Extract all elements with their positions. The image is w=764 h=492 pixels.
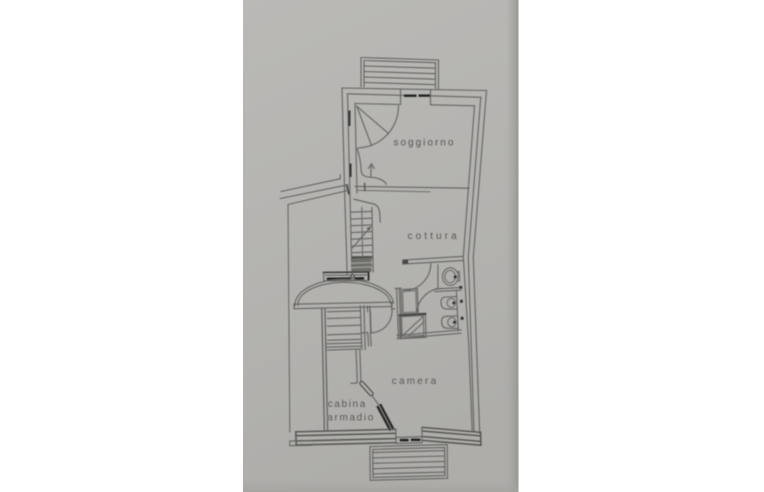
svg-text:camera: camera: [392, 376, 439, 387]
svg-text:cabina: cabina: [328, 399, 367, 410]
svg-text:soggiorno: soggiorno: [394, 138, 456, 149]
svg-text:armadio: armadio: [327, 412, 375, 423]
svg-text:cottura: cottura: [408, 231, 460, 242]
